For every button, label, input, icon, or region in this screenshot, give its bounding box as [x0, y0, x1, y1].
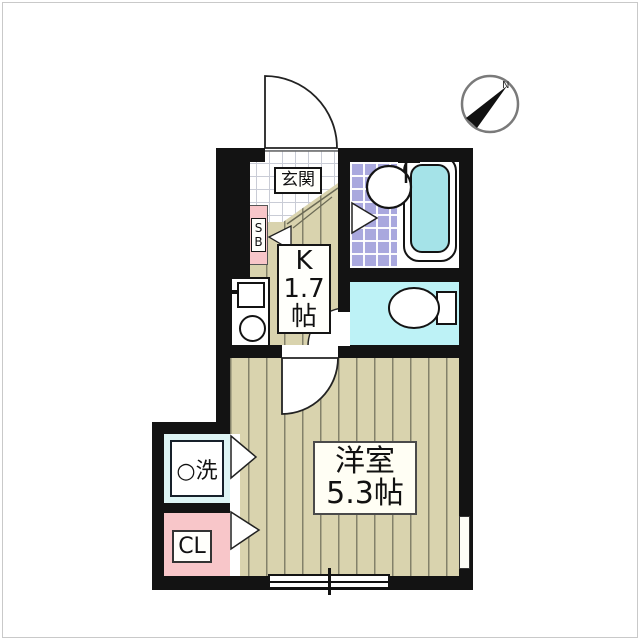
window-bottom-tick: [328, 568, 331, 595]
wall-washer-closet-divider: [152, 503, 230, 513]
western-room-label-size: 5.3帖: [326, 478, 404, 510]
western-room-label-name: 洋室: [335, 446, 395, 478]
bathtub-inner: [410, 164, 450, 253]
window-right: [459, 516, 470, 569]
closet-door-track: [230, 434, 240, 576]
wall-left-upper: [216, 148, 250, 277]
kitchen-label-box: K 1.7 帖: [277, 244, 331, 334]
toilet-door-opening: [338, 312, 350, 346]
wall-bathroom-left: [338, 148, 350, 282]
wall-bathroom-bottom: [338, 268, 473, 282]
kitchen-label-size: 1.7: [283, 275, 324, 303]
kitchen-sink-square: [237, 282, 265, 308]
floor-plan: N 玄関 S B K 1.7 帖 洋室 5.3帖 ○洗 CL: [0, 0, 640, 640]
closet-label: CL: [178, 535, 206, 559]
entrance-label-box: 玄関: [274, 167, 322, 194]
western-room-label-box: 洋室 5.3帖: [313, 441, 417, 515]
bathroom-tile-floor: [350, 162, 397, 268]
room-door-opening: [282, 345, 338, 358]
wall-room-top: [216, 345, 473, 358]
kitchen-burner-circle: [239, 315, 266, 342]
shoe-box-label-s: S: [255, 221, 263, 235]
shoe-box-label-b: B: [254, 235, 262, 249]
kitchen-label-unit: 帖: [291, 303, 317, 331]
washer-label-wrap: ○洗: [170, 440, 224, 497]
toilet-tank: [436, 291, 457, 325]
kitchen-label-letter: K: [295, 247, 312, 275]
closet-label-box: CL: [172, 530, 212, 563]
wall-top-right: [338, 148, 473, 162]
shoe-box-label-box: S B: [251, 218, 266, 252]
entrance-label: 玄関: [281, 171, 315, 189]
washer-label: ○洗: [176, 453, 217, 485]
